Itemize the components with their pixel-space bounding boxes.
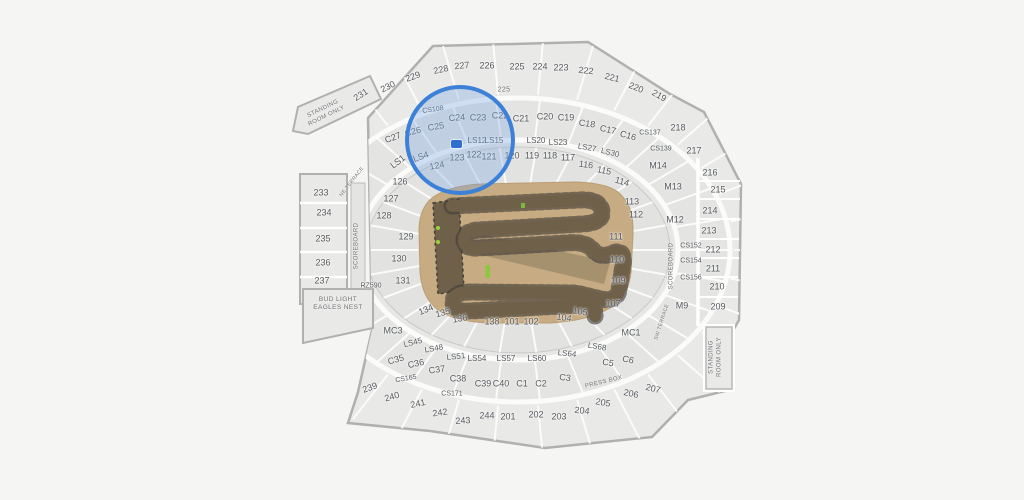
section-101[interactable]: 101 bbox=[504, 318, 519, 327]
section-C19[interactable]: C19 bbox=[558, 114, 575, 123]
section-225[interactable]: 225 bbox=[509, 63, 524, 72]
section-CS156[interactable]: CS156 bbox=[680, 275, 701, 282]
section-204[interactable]: 204 bbox=[574, 406, 590, 417]
section-210[interactable]: 210 bbox=[709, 283, 724, 292]
bud-light-eagles-nest-block[interactable] bbox=[303, 289, 373, 343]
section-C40[interactable]: C40 bbox=[493, 380, 510, 389]
section-M12[interactable]: M12 bbox=[666, 216, 684, 225]
section-110[interactable]: 110 bbox=[610, 256, 624, 265]
gate-marker bbox=[436, 226, 440, 230]
track-vehicle bbox=[521, 203, 525, 208]
section-224[interactable]: 224 bbox=[532, 63, 547, 72]
section-202[interactable]: 202 bbox=[528, 411, 543, 420]
section-102[interactable]: 102 bbox=[523, 318, 538, 327]
section-C3[interactable]: C3 bbox=[559, 373, 571, 383]
start-gate bbox=[486, 265, 491, 278]
section-213[interactable]: 213 bbox=[701, 227, 716, 236]
section-M9[interactable]: M9 bbox=[676, 302, 689, 311]
section-236[interactable]: 236 bbox=[315, 259, 330, 268]
section-C38[interactable]: C38 bbox=[450, 375, 467, 384]
section-M13[interactable]: M13 bbox=[664, 183, 682, 192]
section-233[interactable]: 233 bbox=[313, 189, 328, 198]
section-128[interactable]: 128 bbox=[376, 212, 391, 221]
section-131[interactable]: 131 bbox=[395, 277, 410, 286]
section-C5[interactable]: C5 bbox=[602, 358, 615, 369]
section-109[interactable]: 109 bbox=[610, 277, 625, 286]
stadium-svg bbox=[0, 0, 1024, 500]
section-CS171[interactable]: CS171 bbox=[441, 391, 462, 398]
section-216[interactable]: 216 bbox=[702, 169, 717, 178]
section-129[interactable]: 129 bbox=[398, 233, 413, 242]
section-C21[interactable]: C21 bbox=[513, 115, 530, 124]
section-209[interactable]: 209 bbox=[710, 303, 725, 312]
section-215[interactable]: 215 bbox=[710, 186, 725, 195]
section-LS60[interactable]: LS60 bbox=[528, 355, 547, 363]
section-CS137[interactable]: CS137 bbox=[639, 130, 660, 137]
section-M14[interactable]: M14 bbox=[649, 162, 667, 171]
gate-marker bbox=[436, 240, 440, 244]
section-RZ590[interactable]: RZ590 bbox=[360, 283, 381, 290]
stadium-seating-map: 231230229228227226225224223222221220219C… bbox=[0, 0, 1024, 500]
section-138[interactable]: 138 bbox=[484, 318, 499, 327]
section-130[interactable]: 130 bbox=[391, 255, 406, 264]
section-118[interactable]: 118 bbox=[543, 152, 557, 161]
section-203[interactable]: 203 bbox=[551, 413, 566, 422]
section-235[interactable]: 235 bbox=[315, 235, 330, 244]
section-CS154[interactable]: CS154 bbox=[680, 258, 701, 265]
section-127[interactable]: 127 bbox=[383, 195, 398, 204]
section-LS57[interactable]: LS57 bbox=[497, 355, 516, 363]
section-C2[interactable]: C2 bbox=[535, 380, 547, 389]
standing-room-right-block[interactable] bbox=[706, 327, 732, 389]
section-MC3[interactable]: MC3 bbox=[383, 327, 402, 336]
section-234[interactable]: 234 bbox=[316, 209, 331, 218]
section-218[interactable]: 218 bbox=[670, 124, 685, 133]
section-243[interactable]: 243 bbox=[455, 416, 471, 426]
section-C1[interactable]: C1 bbox=[516, 380, 528, 389]
section-244[interactable]: 244 bbox=[479, 412, 494, 421]
section-112[interactable]: 112 bbox=[629, 211, 643, 220]
section-222[interactable]: 222 bbox=[578, 66, 594, 77]
section-CS152[interactable]: CS152 bbox=[680, 243, 701, 250]
section-227[interactable]: 227 bbox=[454, 61, 470, 72]
selected-listing-pin-icon[interactable] bbox=[451, 140, 462, 148]
section-201[interactable]: 201 bbox=[500, 413, 515, 422]
section-CS139[interactable]: CS139 bbox=[650, 146, 671, 153]
dirt-track-field bbox=[419, 182, 633, 323]
section-LS20[interactable]: LS20 bbox=[527, 137, 546, 145]
section-223[interactable]: 223 bbox=[553, 64, 568, 73]
section-C39[interactable]: C39 bbox=[475, 380, 492, 389]
section-MC1[interactable]: MC1 bbox=[621, 329, 640, 338]
section-111[interactable]: 111 bbox=[609, 233, 623, 242]
section-C20[interactable]: C20 bbox=[537, 113, 554, 122]
section-226[interactable]: 226 bbox=[479, 62, 494, 71]
section-104[interactable]: 104 bbox=[556, 312, 572, 323]
section-126[interactable]: 126 bbox=[392, 178, 407, 187]
section-LS23[interactable]: LS23 bbox=[549, 139, 568, 147]
section-117[interactable]: 117 bbox=[561, 154, 575, 163]
section-237[interactable]: 237 bbox=[314, 277, 329, 286]
section-113[interactable]: 113 bbox=[625, 198, 639, 207]
section-107[interactable]: 107 bbox=[605, 300, 620, 309]
section-LS54[interactable]: LS54 bbox=[468, 355, 487, 363]
section-217[interactable]: 217 bbox=[686, 147, 701, 156]
section-212[interactable]: 212 bbox=[705, 246, 720, 255]
section-116[interactable]: 116 bbox=[578, 160, 593, 171]
section-119[interactable]: 119 bbox=[525, 152, 539, 161]
section-211[interactable]: 211 bbox=[706, 265, 720, 274]
section-214[interactable]: 214 bbox=[702, 207, 717, 216]
